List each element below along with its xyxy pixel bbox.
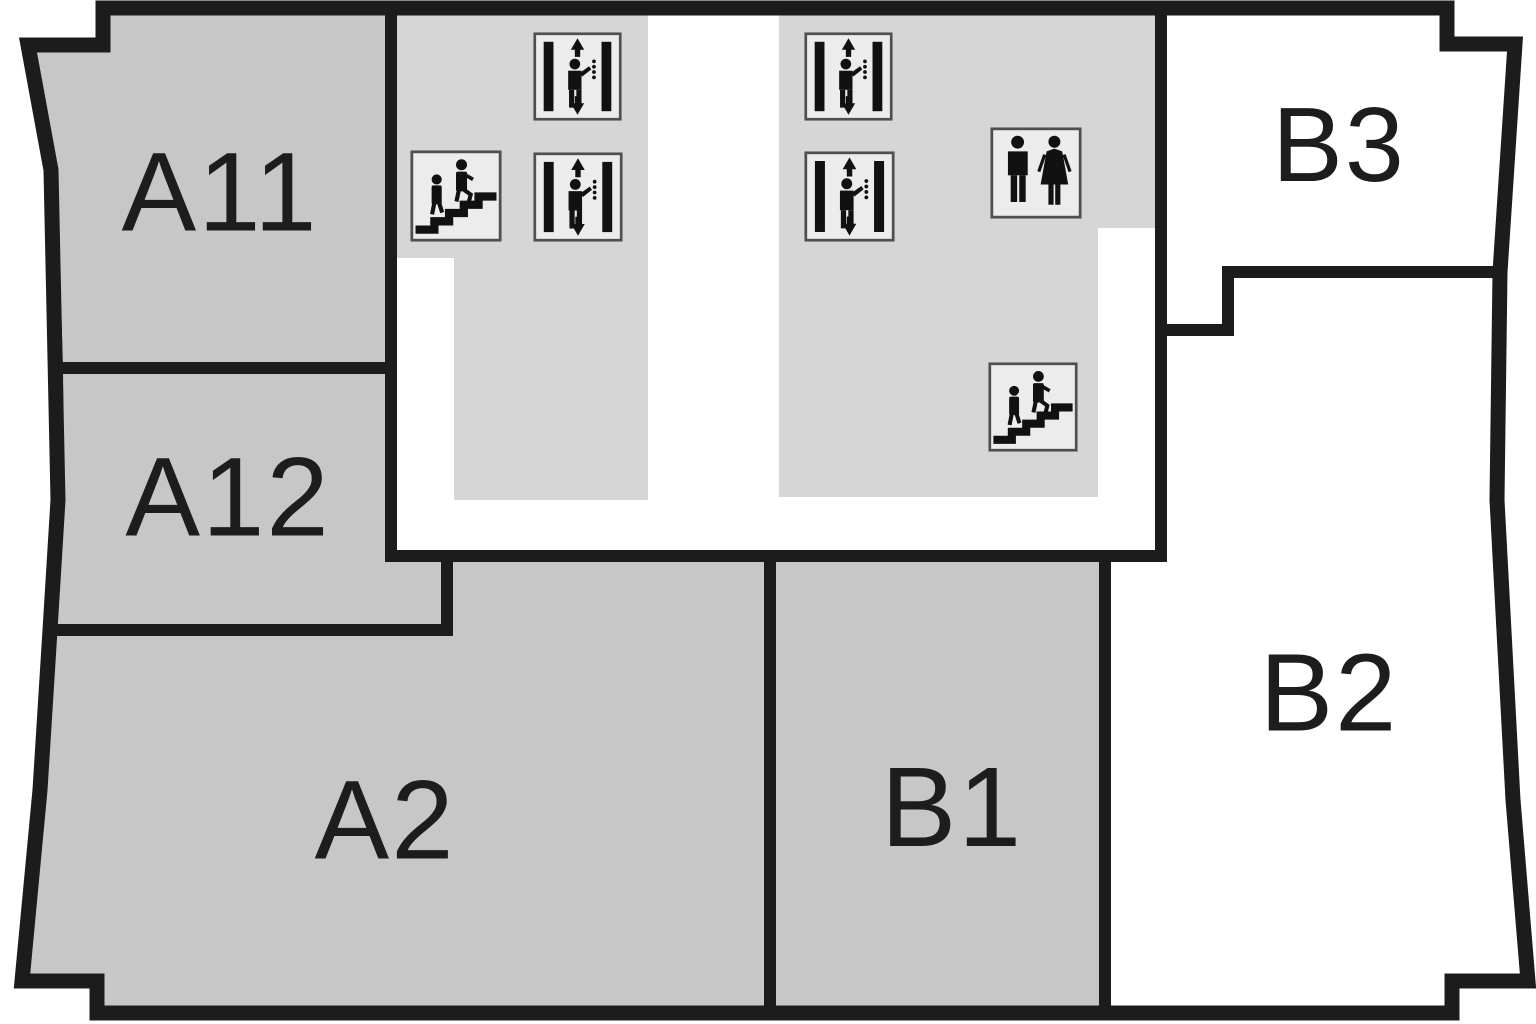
elevator-icon [535,34,620,119]
room-label-b3: B3 [1272,86,1406,204]
room-label-a12: A12 [125,435,330,560]
room-label-a2: A2 [315,758,456,883]
elevator-icon [535,154,621,240]
room-label-b2: B2 [1260,632,1399,755]
wc-restroom-icon: <31 y="52.5"> [992,129,1080,217]
floor-plan-svg: <31 y="52.5"> A11A12A2B1B2B3 [0,0,1536,1024]
stairs-up-icon [412,152,500,240]
elevator-icon [806,153,893,240]
floor-plan-page: <31 y="52.5"> A11A12A2B1B2B3 [0,0,1536,1024]
elevator-icon [806,34,891,119]
room-label-b1: B1 [881,744,1023,870]
room-label-a11: A11 [122,130,319,255]
stairs-up-icon [990,364,1076,450]
